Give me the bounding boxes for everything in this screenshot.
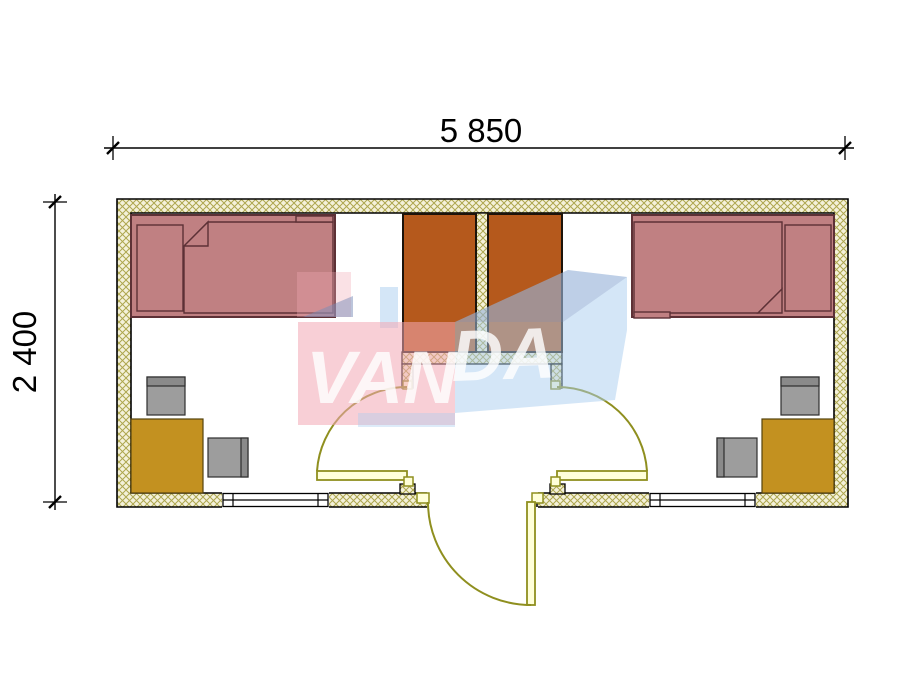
window-left [222,492,329,508]
watermark-text-front: VAN [306,336,458,419]
door-entrance-strike [417,493,429,503]
desk-right-top [762,419,834,493]
desk-right [762,419,834,493]
bed-right [632,215,834,318]
dimension-height: 2 400 [6,194,67,510]
chair-left-2-backrest [241,438,248,477]
floor-plan-page: 5 850 2 400 [0,0,924,700]
bed-left-sheet-edge [296,216,333,222]
door-entrance-leaf [527,502,535,605]
entrance-opening [427,491,538,508]
door-entrance [417,493,543,605]
door-entrance-swing-arc [428,502,531,605]
bed-right-blanket [634,222,782,313]
chair-right-1 [781,377,819,415]
chair-right-2 [717,438,757,477]
chair-right-2-backrest [717,438,724,477]
door-room-left-leaf [317,471,407,480]
chair-left-1 [147,377,185,415]
desk-left-top [131,419,203,493]
entrance-gap [427,491,538,508]
dimension-width: 5 850 [104,112,854,160]
door-room-right-hinge [551,477,560,486]
watermark-blue-strip [380,287,398,328]
bed-right-sheet-edge [634,312,670,318]
floor-plan-canvas: 5 850 2 400 [0,0,924,700]
bed-right-pillow [785,225,831,311]
door-room-left-hinge [404,477,413,486]
door-room-right-leaf [557,471,647,480]
chair-left-1-backrest [147,377,185,386]
dimension-width-label: 5 850 [440,112,523,149]
desk-left [131,419,203,493]
chair-left-2 [208,438,248,477]
chair-right-1-backrest [781,377,819,386]
bed-left-pillow [137,225,183,311]
dimension-height-label: 2 400 [6,311,43,394]
watermark-text-side: DA [450,313,557,397]
window-right [649,492,756,508]
